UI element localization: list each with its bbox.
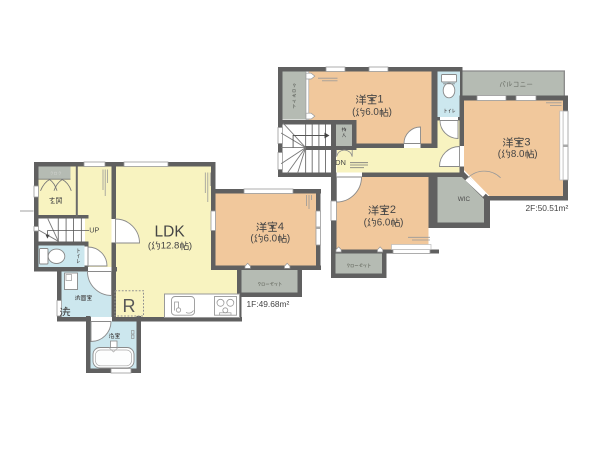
svg-text:2F:50.51m²: 2F:50.51m²	[526, 203, 569, 213]
svg-text:LDK: LDK	[155, 224, 186, 241]
svg-text:6.0: 6.0	[264, 233, 278, 244]
svg-text:6.0: 6.0	[377, 217, 391, 228]
svg-text:1F:49.68m²: 1F:49.68m²	[247, 299, 290, 309]
svg-text:4: 4	[278, 221, 284, 233]
svg-text:): )	[287, 233, 290, 244]
svg-text:DN: DN	[335, 158, 346, 167]
svg-text:): )	[534, 149, 537, 160]
svg-text:): )	[389, 107, 392, 118]
svg-text:R: R	[123, 296, 136, 316]
svg-text:12.8: 12.8	[161, 241, 180, 252]
svg-text:2: 2	[390, 204, 396, 216]
svg-text:UP: UP	[89, 225, 99, 234]
svg-text:): )	[400, 217, 403, 228]
svg-text:3: 3	[524, 136, 530, 148]
svg-text:6.0: 6.0	[365, 107, 379, 118]
svg-text:): )	[189, 241, 192, 252]
svg-text:8.0: 8.0	[511, 149, 525, 160]
svg-text:WIC: WIC	[458, 196, 471, 203]
svg-text:1: 1	[377, 94, 383, 106]
